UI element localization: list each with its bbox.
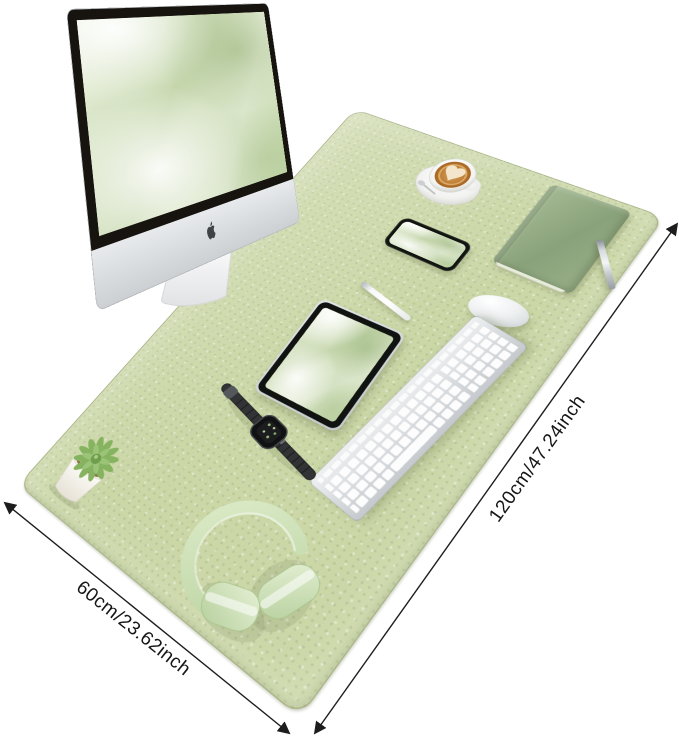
notebook-pages	[494, 262, 566, 294]
apple-logo-icon	[205, 219, 217, 243]
notebook-spine	[491, 184, 558, 264]
imac-screen	[77, 12, 288, 236]
succulent-plant	[33, 419, 142, 523]
stylus-pencil	[360, 281, 412, 322]
smartphone-screen	[387, 220, 468, 269]
smartphone	[381, 216, 473, 274]
product-photo-scene: 120cm/47.24inch 60cm/23.62inch	[0, 0, 679, 737]
tablet-screen	[264, 307, 395, 423]
coffee-cup	[403, 148, 500, 214]
